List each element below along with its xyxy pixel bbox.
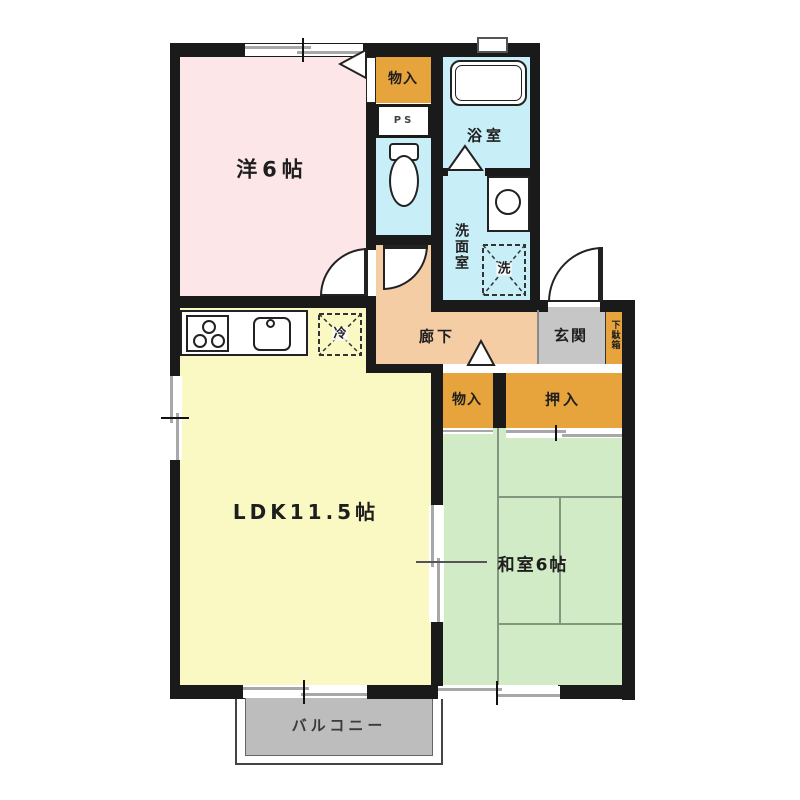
label-washroom: 洗面室	[454, 223, 468, 271]
wall-western-south	[170, 296, 376, 308]
window-bathroom-top	[477, 37, 508, 53]
label-ldk: LDK11.5帖	[233, 502, 379, 522]
wall-left	[170, 43, 180, 697]
label-shoe-cabinet: 下駄箱	[610, 320, 619, 350]
bathtub	[450, 60, 527, 106]
wall-ldk-east-upper	[431, 364, 443, 507]
wall-right-upper	[530, 43, 540, 312]
window-rail	[438, 688, 502, 691]
label-pipe-space: PS	[394, 116, 415, 126]
bathroom-door-triangle	[446, 144, 484, 172]
fusuma-rail	[506, 430, 566, 433]
wall-bottom-middle	[367, 685, 438, 699]
label-entrance: 玄関	[554, 329, 588, 344]
wall-toilet-east	[431, 43, 443, 312]
room-hallway	[376, 312, 538, 364]
closet-upper-door-triangle	[338, 48, 368, 80]
label-closet-lower: 物入	[452, 393, 482, 407]
fusuma-rail	[562, 434, 622, 437]
wall-toilet-south	[376, 235, 431, 245]
room-ldk	[180, 308, 366, 685]
window-rail	[243, 687, 309, 690]
fusuma-tick	[555, 425, 557, 441]
label-washing-machine: 洗	[496, 263, 511, 276]
toilet-bowl	[389, 155, 419, 207]
label-bathroom: 浴室	[467, 129, 505, 144]
stove	[186, 315, 229, 352]
washbasin-bowl	[495, 189, 521, 215]
entrance-step-triangle	[466, 339, 496, 367]
window-tick	[303, 680, 305, 704]
wall-bottom-left	[170, 685, 245, 699]
label-western-room: 洋6帖	[236, 160, 308, 181]
burner	[202, 320, 216, 334]
entrance-divider-line	[537, 310, 539, 364]
window-tick	[161, 417, 189, 419]
bathtub-inner	[455, 65, 522, 101]
wall-entrance-north-left	[443, 300, 548, 312]
window-tick	[496, 681, 498, 705]
window-rail	[301, 693, 367, 696]
room-ldk-east	[366, 373, 431, 685]
wall-between-closets	[493, 373, 506, 428]
window-tick	[302, 38, 304, 62]
label-japanese-room: 和室6帖	[498, 558, 569, 575]
label-balcony: バルコニー	[292, 719, 387, 734]
label-refrigerator: 冷	[332, 328, 347, 341]
floorplan: 洋6帖 LDK11.5帖 和室6帖 浴室 洗面室 廊下 玄関 バルコニー 物入 …	[0, 0, 800, 800]
label-pointer-line	[416, 561, 487, 563]
closet-door-rail	[443, 430, 493, 432]
faucet	[266, 319, 275, 328]
window-rail	[170, 376, 173, 423]
label-closet-upper: 物入	[388, 72, 418, 86]
label-hallway: 廊下	[419, 330, 455, 345]
burner	[193, 334, 207, 348]
window-rail	[176, 413, 179, 460]
label-oshiire: 押入	[545, 393, 581, 408]
door-entrance-front	[548, 247, 603, 302]
sliding-door-rail	[437, 558, 440, 622]
wall-right-lower	[622, 300, 635, 700]
wall-bath-washroom-b	[485, 168, 530, 176]
wall-entrance-north-right	[600, 300, 635, 312]
burner	[211, 334, 225, 348]
window-rail	[496, 694, 560, 697]
wall-hall-west	[366, 296, 376, 368]
sliding-door-rail	[431, 505, 434, 567]
